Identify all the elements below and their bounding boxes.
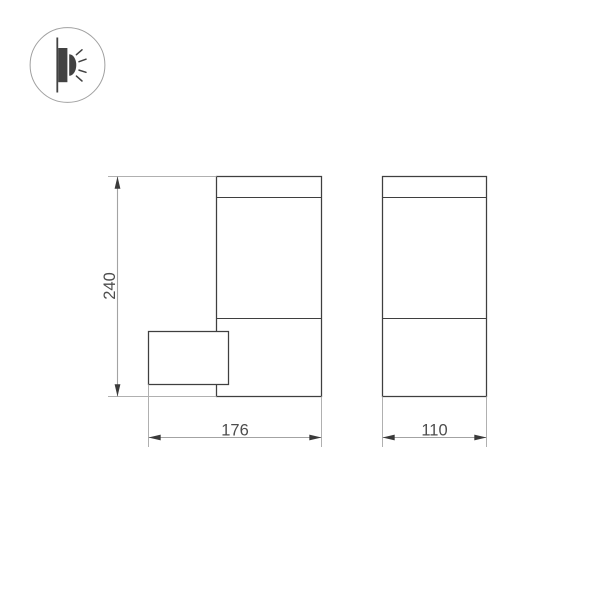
svg-text:240: 240	[101, 272, 119, 300]
svg-text:176: 176	[221, 421, 249, 439]
svg-text:110: 110	[421, 421, 447, 439]
